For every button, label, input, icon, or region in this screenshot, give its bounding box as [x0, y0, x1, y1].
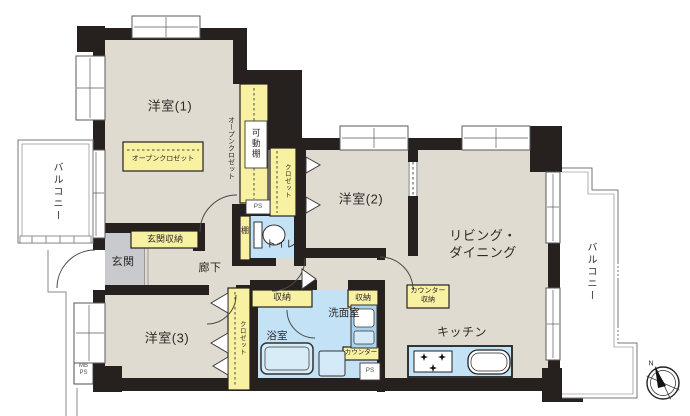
room2-label: 洋室(2) [339, 192, 383, 209]
kitchen-label: キッチン [437, 325, 487, 341]
movable-shelf-label: 可動棚 [252, 128, 261, 160]
toilet-label: トイレ [266, 239, 296, 252]
balcony-right [562, 168, 637, 398]
open-closet-side-label: オープンクロゼット [228, 117, 235, 180]
hallway-label: 廊下 [199, 261, 222, 275]
room3-label: 洋室(3) [145, 331, 189, 348]
bathroom-label: 浴室 [267, 330, 288, 344]
ps-washroom-label: PS [366, 367, 375, 375]
kitchen-counter [408, 346, 512, 377]
storage-bathside-label: 収納 [273, 292, 291, 304]
living-dining-label: リビング・ ダイニング [449, 228, 517, 262]
closet-room2-label: クロゼット [283, 164, 290, 199]
floorplan: 洋室(1) 洋室(2) 洋室(3) リビング・ ダイニング キッチン 玄関 玄関… [0, 0, 690, 416]
approach-lines [48, 250, 77, 416]
stove-icon [414, 351, 452, 372]
shelf-label: 棚 [241, 226, 249, 236]
ps-toilet-label: PS [254, 203, 263, 211]
partition-dashed [408, 162, 418, 196]
sink-icon [468, 350, 510, 374]
balcony-right-label: バルコニー [585, 242, 595, 302]
entrance-storage-label: 玄関収納 [147, 234, 183, 246]
counter-label: カウンター [345, 349, 378, 357]
entrance-label: 玄関 [112, 255, 135, 269]
meter-box-label: MB PS [79, 363, 88, 377]
compass-north-label: N [648, 359, 653, 368]
washroom-label: 洗面室 [328, 307, 360, 321]
balcony-left-label: バルコニー [51, 162, 61, 222]
storage-washroom-label: 収納 [355, 293, 371, 303]
compass-icon [647, 367, 680, 400]
counter-storage-label: カウンター 収納 [411, 287, 446, 306]
open-closet-room1-label: オープンクロゼット [132, 154, 195, 163]
closet-room3-label: クロゼット [238, 321, 245, 356]
washer-space-icon [319, 351, 345, 376]
bathtub-icon [261, 343, 313, 374]
room1-label: 洋室(1) [148, 99, 192, 116]
